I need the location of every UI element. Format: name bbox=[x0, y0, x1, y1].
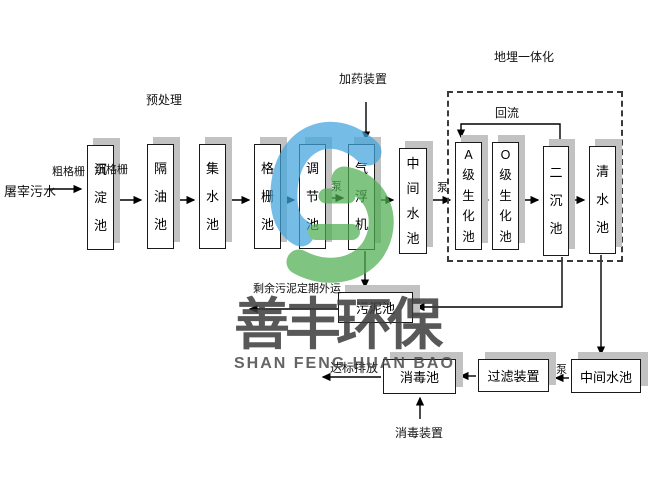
label-discharge-standard: 达标排放 bbox=[330, 359, 378, 376]
label-disinfection-device: 消毒装置 bbox=[395, 424, 443, 441]
tank-water-collection: 集水池 bbox=[199, 144, 226, 249]
tank-label: 二沉池 bbox=[549, 159, 564, 243]
label-buried-integration: 地埋一体化 bbox=[494, 48, 554, 65]
label-sludge-hauled-out: 剩余污泥定期外运 bbox=[253, 280, 341, 296]
box-filter-device: 过滤装置 bbox=[478, 359, 549, 392]
label-fine-screen: 细格栅 bbox=[95, 161, 128, 177]
tank-clear-water: 清水池 bbox=[589, 146, 616, 254]
tank-label: 调节池 bbox=[305, 155, 320, 239]
label-pump-1: 泵 bbox=[331, 178, 342, 194]
label-pump-2: 泵 bbox=[437, 179, 448, 195]
tank-regulating: 调节池 bbox=[299, 144, 326, 249]
tank-label: 隔油池 bbox=[153, 155, 168, 239]
tank-label: 气浮机 bbox=[354, 155, 369, 239]
tank-label: A级生化池 bbox=[461, 145, 476, 248]
box-label: 污泥池 bbox=[356, 298, 395, 317]
flow-diagram: 沉淀池 隔油池 集水池 格栅池 调节池 气浮机 中间水池 A级生化池 O级生化池… bbox=[0, 0, 650, 500]
tank-label: 格栅池 bbox=[260, 155, 275, 239]
label-pump-3: 泵 bbox=[556, 361, 567, 377]
box-label: 中间水池 bbox=[580, 367, 632, 386]
tank-air-flotation: 气浮机 bbox=[348, 144, 375, 250]
label-reflux: 回流 bbox=[495, 104, 519, 121]
box-disinfection-tank: 消毒池 bbox=[383, 359, 456, 394]
label-pretreatment: 预处理 bbox=[146, 91, 182, 108]
tank-label: 集水池 bbox=[205, 155, 220, 239]
label-influent-source: 屠宰污水 bbox=[4, 181, 56, 200]
box-label: 消毒池 bbox=[400, 367, 439, 386]
label-coarse-screen: 粗格栅 bbox=[52, 163, 85, 179]
tank-a-stage-bio: A级生化池 bbox=[455, 142, 482, 250]
box-sludge-tank: 污泥池 bbox=[338, 292, 413, 323]
tank-secondary-sedimentation: 二沉池 bbox=[543, 146, 569, 256]
box-label: 过滤装置 bbox=[487, 366, 539, 385]
tank-o-stage-bio: O级生化池 bbox=[492, 142, 519, 250]
tank-grid: 格栅池 bbox=[254, 144, 281, 249]
tank-intermediate-upper: 中间水池 bbox=[399, 148, 427, 254]
tank-label: 清水池 bbox=[595, 158, 610, 242]
box-intermediate-lower: 中间水池 bbox=[571, 359, 641, 393]
tank-oil-separation: 隔油池 bbox=[147, 144, 174, 249]
tank-label: 中间水池 bbox=[406, 151, 421, 251]
tank-label: O级生化池 bbox=[498, 145, 513, 248]
label-dosing-device: 加药装置 bbox=[339, 70, 387, 87]
